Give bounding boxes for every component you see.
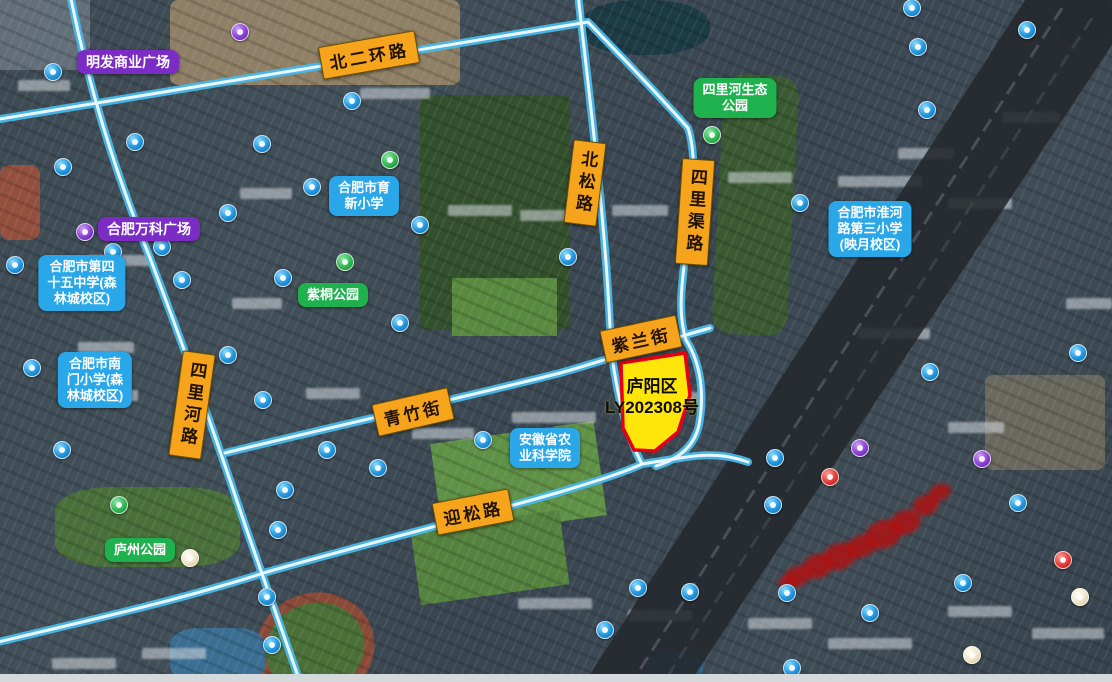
poi-label-line: 门小学(森	[67, 372, 123, 388]
road-label-zilan-street[interactable]: 紫兰街	[599, 315, 682, 363]
poi-label-line: 明发商业广场	[86, 54, 170, 70]
poi-label-line: 林城校区)	[67, 388, 123, 404]
poi-label-anhui-academy-of-agricultural-sciences[interactable]: 安徽省农业科学院	[510, 428, 580, 468]
poi-label-mingfa-commercial-plaza[interactable]: 明发商业广场	[77, 50, 179, 74]
poi-label-line: 合肥市第四	[47, 259, 116, 275]
poi-label-silihe-ecological-park[interactable]: 四里河生态公园	[693, 78, 776, 118]
poi-label-line: 庐州公园	[114, 542, 166, 558]
poi-label-zitong-park[interactable]: 紫桐公园	[298, 283, 368, 307]
poi-label-line: 林城校区)	[47, 291, 116, 307]
poi-label-hefei-vanke-plaza[interactable]: 合肥万科广场	[98, 217, 200, 241]
bottom-strip	[0, 674, 1112, 682]
label-layer: 北二环路北松路四里渠路四里河路紫兰街青竹街迎松路明发商业广场合肥万科广场合肥市第…	[0, 0, 1112, 682]
parcel-district: 庐阳区	[605, 376, 699, 397]
poi-label-line: (映月校区)	[837, 237, 902, 253]
poi-label-hefei-nanmen-primary-forest-city-campus[interactable]: 合肥市南门小学(森林城校区)	[58, 352, 132, 408]
poi-label-line: 合肥万科广场	[107, 221, 191, 237]
road-label-siliqu-road[interactable]: 四里渠路	[675, 158, 715, 266]
poi-label-luzhou-park[interactable]: 庐州公园	[105, 538, 175, 562]
road-label-qingzhu-street[interactable]: 青竹街	[371, 387, 454, 437]
road-label-silihe-road[interactable]: 四里河路	[168, 350, 215, 460]
poi-label-line: 合肥市淮河	[837, 205, 902, 221]
poi-label-hefei-huaihe-rd-no3-primary-yingyue-campus[interactable]: 合肥市淮河路第三小学(映月校区)	[828, 201, 911, 257]
poi-label-line: 紫桐公园	[307, 287, 359, 303]
poi-label-line: 合肥市育	[338, 180, 390, 196]
parcel-code: LY202308号	[605, 397, 699, 418]
poi-label-hefei-yuxin-primary-school[interactable]: 合肥市育新小学	[329, 176, 399, 216]
poi-label-hefei-no45-middle-school-forest-city-campus[interactable]: 合肥市第四十五中学(森林城校区)	[38, 255, 125, 311]
road-label-beierhuan-road[interactable]: 北二环路	[318, 30, 420, 80]
road-label-yingsong-road[interactable]: 迎松路	[432, 488, 515, 535]
poi-label-line: 十五中学(森	[47, 275, 116, 291]
poi-label-line: 四里河生态	[702, 82, 767, 98]
poi-label-line: 路第三小学	[837, 221, 902, 237]
poi-label-line: 业科学院	[519, 448, 571, 464]
satellite-map-canvas: 庐阳区 LY202308号 北二环路北松路四里渠路四里河路紫兰街青竹街迎松路明发…	[0, 0, 1112, 682]
poi-label-line: 公园	[702, 98, 767, 114]
poi-label-line: 合肥市南	[67, 356, 123, 372]
road-label-beisong-road[interactable]: 北松路	[564, 139, 607, 226]
poi-label-line: 安徽省农	[519, 432, 571, 448]
parcel-label: 庐阳区 LY202308号	[605, 376, 699, 418]
poi-label-line: 新小学	[338, 196, 390, 212]
